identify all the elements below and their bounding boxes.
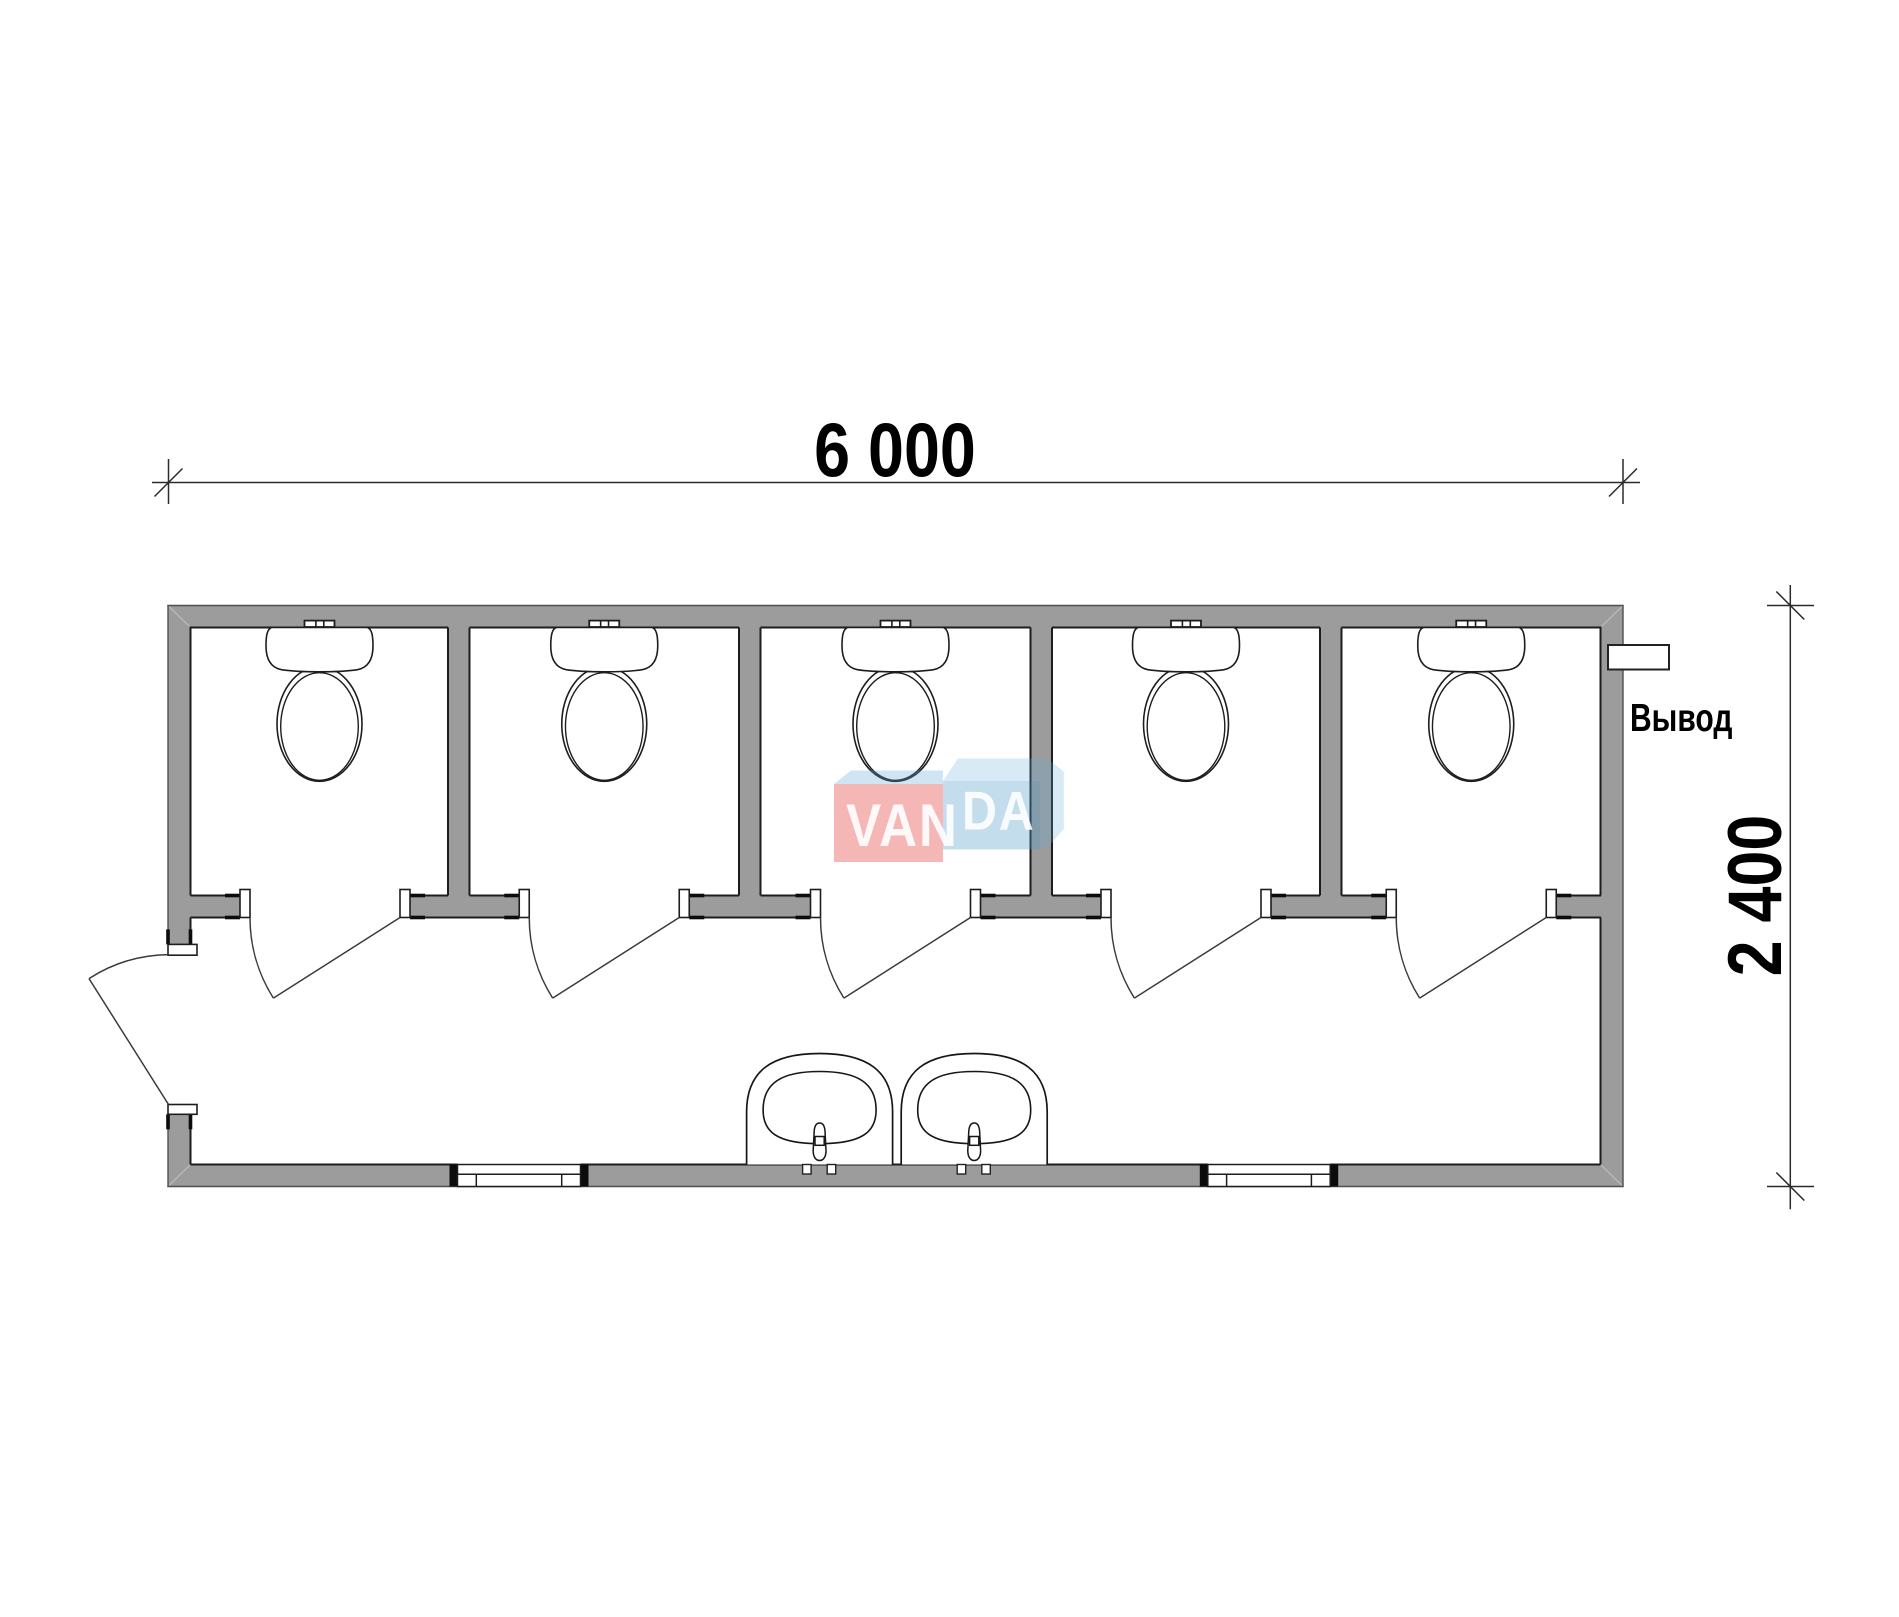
svg-text:2 400: 2 400 (1712, 815, 1797, 977)
svg-text:DA: DA (962, 780, 1035, 842)
svg-text:VAN: VAN (846, 792, 959, 859)
svg-text:Вывод: Вывод (1630, 696, 1732, 740)
svg-text:6 000: 6 000 (814, 408, 976, 493)
